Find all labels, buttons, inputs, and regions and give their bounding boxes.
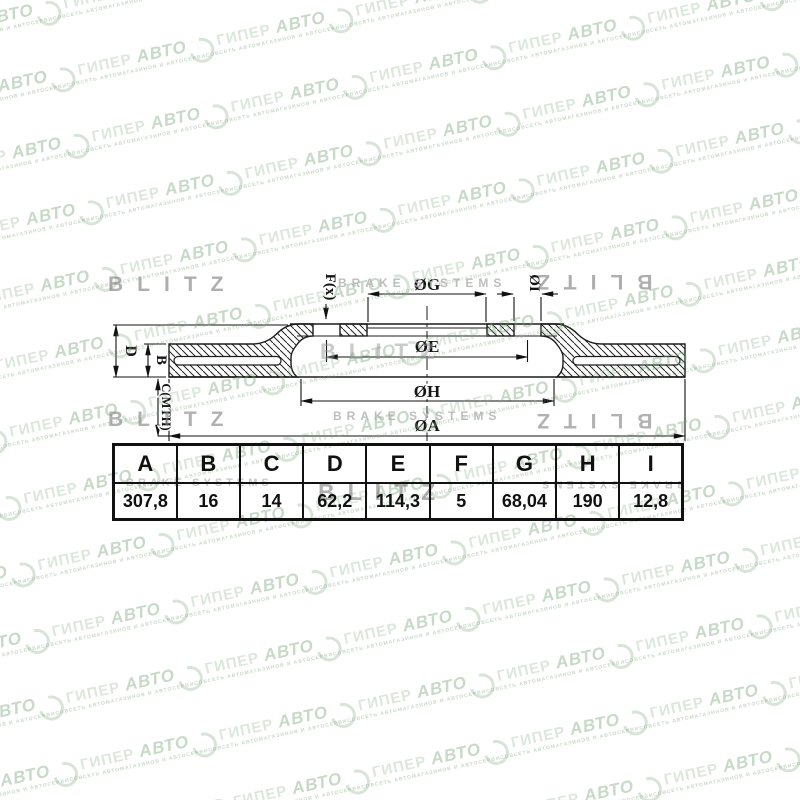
table-header-cell: G [493,445,556,484]
table-value-cell: 307,8 [114,483,177,520]
table-value-cell: 190 [556,483,619,520]
dimension-dia-i [497,294,558,321]
table-header-cell: A [114,445,177,484]
page: ØG ØI F(x) ØE ØH ØA D B C(MTH) ГИПЕР АВТ… [0,0,800,800]
table-header-cell: E [366,445,429,484]
table-value-cell: 14 [240,483,303,520]
table-header-cell: C [240,445,303,484]
table-header-cell: B [177,445,240,484]
brake-disc-technical-drawing: ØG ØI F(x) ØE ØH ØA D B C(MTH) [0,0,800,800]
table-value-cell: 16 [177,483,240,520]
vent-gap-right [573,357,680,366]
dim-label-b: B [153,355,169,365]
right-plates-and-hat-wall [541,324,685,377]
dim-label-dia-h: ØH [414,382,440,401]
table-header-cell: F [430,445,493,484]
table-value-row: 307,8 16 14 62,2 114,3 5 68,04 190 12,8 [114,483,683,520]
table-value-cell: 12,8 [619,483,682,520]
table-header-cell: I [619,445,682,484]
dim-label-dia-e: ØE [415,337,440,356]
dim-label-dia-i: ØI [526,274,542,292]
table-value-cell: 62,2 [303,483,366,520]
dim-label-f-bolt-count: F(x) [322,274,338,301]
dim-label-c-min-thickness: C(MTH) [159,383,173,430]
hub-flange-hatch-right [487,324,514,336]
hub-flange-hatch-left [340,324,367,336]
dim-label-dia-g: ØG [414,275,440,294]
vent-gap-left [174,357,281,366]
dimensions-table: A B C D E F G H I 307,8 16 14 62,2 114,3… [112,443,684,521]
table-value-cell: 5 [430,483,493,520]
table-value-cell: 114,3 [366,483,429,520]
table-value-cell: 68,04 [493,483,556,520]
left-plates-and-hat-wall [169,324,313,377]
table-header-cell: H [556,445,619,484]
dim-label-d: D [122,345,139,357]
table-header-row: A B C D E F G H I [114,445,683,484]
dim-label-dia-a: ØA [414,416,440,435]
table-header-cell: D [303,445,366,484]
